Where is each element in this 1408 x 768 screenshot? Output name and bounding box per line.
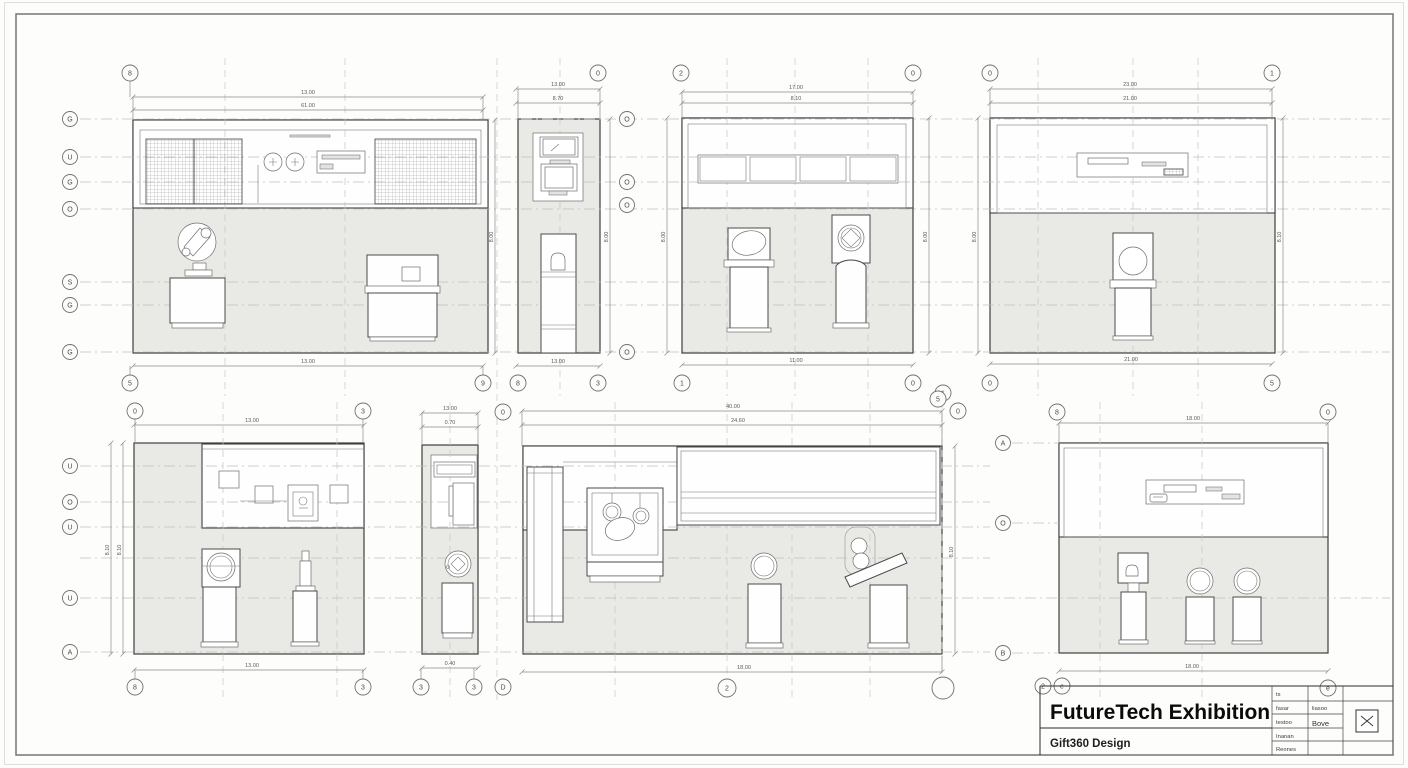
- cad-sheet: 13.00 61.00 13.00 8.00 8 5 9 G U G O S G…: [0, 0, 1408, 768]
- dim-label: 21.00: [1123, 96, 1137, 102]
- svg-text:O: O: [624, 180, 630, 187]
- dim-label: 61.00: [301, 103, 315, 109]
- grid-bubble: 0: [905, 375, 921, 391]
- svg-text:3: 3: [596, 381, 600, 388]
- svg-text:0: 0: [133, 409, 137, 416]
- grid-bubble: 5: [930, 391, 946, 407]
- svg-text:B: B: [1001, 651, 1006, 658]
- table-cell: liasoo: [1312, 706, 1327, 712]
- dim-label: 13.00: [443, 406, 457, 412]
- grid-bubble: G: [63, 345, 78, 360]
- grid-bubble: U: [63, 520, 78, 535]
- svg-text:3: 3: [361, 409, 365, 416]
- grid-bubble: D: [495, 679, 511, 695]
- sheet-subtitle: Gift360 Design: [1050, 738, 1131, 750]
- grid-bubble: 3: [590, 375, 606, 391]
- grid-bubble: 1: [674, 375, 690, 391]
- dim-label: 17.00: [789, 85, 803, 91]
- table-cell: ts: [1276, 692, 1281, 698]
- table-cell: Bove: [1312, 719, 1329, 728]
- dim-label: 8.00: [604, 232, 610, 243]
- dim-label: 24.60: [731, 418, 745, 424]
- grid-bubble: B: [996, 646, 1011, 661]
- svg-text:3: 3: [419, 685, 423, 692]
- svg-text:5: 5: [128, 381, 132, 388]
- svg-text:2: 2: [725, 686, 729, 693]
- grid-bubble: G: [63, 298, 78, 313]
- svg-text:8: 8: [516, 381, 520, 388]
- grid-bubble: 0: [495, 404, 511, 420]
- svg-text:0: 0: [1326, 410, 1330, 417]
- grid-bubble: U: [63, 591, 78, 606]
- dim-label: 13.00: [551, 359, 565, 365]
- grid-bubble: 0: [982, 65, 998, 81]
- grid-bubble: O: [620, 175, 635, 190]
- svg-text:A: A: [1001, 441, 1006, 448]
- dim-label: 18.00: [737, 665, 751, 671]
- dim-label: 13.00: [245, 663, 259, 669]
- svg-text:0: 0: [911, 381, 915, 388]
- dim-label: 40.00: [726, 404, 740, 410]
- sheet-title: FutureTech Exhibition: [1050, 701, 1270, 724]
- svg-text:0: 0: [501, 410, 505, 417]
- grid-bubble: G: [63, 112, 78, 127]
- grid-bubble: 0: [590, 65, 606, 81]
- drawing-sheet-svg: 13.00 61.00 13.00 8.00 8 5 9 G U G O S G…: [0, 0, 1408, 768]
- dim-label: 8.10: [791, 96, 802, 102]
- svg-text:S: S: [68, 280, 73, 287]
- grid-bubble: S: [63, 275, 78, 290]
- svg-text:2: 2: [1041, 684, 1045, 691]
- dim-label: 0.40: [445, 661, 456, 667]
- svg-text:0: 0: [988, 71, 992, 78]
- svg-text:0: 0: [911, 71, 915, 78]
- dim-label: 8.00: [972, 232, 978, 243]
- grid-bubble: G: [63, 175, 78, 190]
- grid-bubble: 1: [1264, 65, 1280, 81]
- dim-label: 8.10: [1277, 232, 1283, 243]
- grid-bubble: 8: [1049, 404, 1065, 420]
- dim-label: 13.00: [301, 90, 315, 96]
- svg-text:5: 5: [936, 397, 940, 404]
- svg-text:G: G: [67, 303, 72, 310]
- dim-label: 8.10: [117, 545, 123, 556]
- svg-text:e: e: [1326, 686, 1330, 693]
- svg-text:G: G: [67, 180, 72, 187]
- svg-text:8: 8: [128, 71, 132, 78]
- dim-label: 8.10: [949, 547, 955, 558]
- grid-bubble: O: [620, 198, 635, 213]
- svg-text:O: O: [67, 207, 73, 214]
- dim-label: 23.00: [1123, 82, 1137, 88]
- svg-text:1: 1: [680, 381, 684, 388]
- grid-bubble: 0: [982, 375, 998, 391]
- dim-label: 18.00: [1185, 664, 1199, 670]
- stamp-icon: [1356, 710, 1378, 732]
- grid-bubble: O: [620, 112, 635, 127]
- dim-label: 18.00: [1186, 416, 1200, 422]
- svg-text:U: U: [67, 464, 72, 471]
- svg-text:D: D: [500, 685, 505, 692]
- svg-text:0: 0: [988, 381, 992, 388]
- dim-label: 13.00: [301, 359, 315, 365]
- dim-label: 11.00: [789, 358, 802, 364]
- svg-text:9: 9: [481, 381, 485, 388]
- table-cell: testoo: [1276, 720, 1292, 726]
- dim-label: 13.00: [245, 418, 259, 424]
- svg-text:O: O: [624, 117, 630, 124]
- svg-text:8: 8: [1055, 410, 1059, 417]
- dim-label: 8.10: [105, 545, 111, 556]
- grid-bubble: U: [63, 150, 78, 165]
- grid-bubble: O: [63, 495, 78, 510]
- svg-text:5: 5: [1270, 381, 1274, 388]
- svg-text:0: 0: [596, 71, 600, 78]
- dim-label: 8.70: [553, 96, 564, 102]
- dim-label: 8.00: [661, 232, 667, 243]
- svg-text:O: O: [1000, 521, 1006, 528]
- svg-text:U: U: [67, 525, 72, 532]
- table-cell: Inanan: [1276, 734, 1294, 740]
- svg-text:0: 0: [956, 409, 960, 416]
- dim-label: 0.70: [445, 420, 456, 426]
- svg-text:2: 2: [679, 71, 683, 78]
- svg-text:U: U: [67, 155, 72, 162]
- dim-label: 21.00: [1124, 357, 1138, 363]
- table-cell: fasar: [1276, 706, 1289, 712]
- grid-bubble: 0: [950, 403, 966, 419]
- grid-bubble: O: [996, 516, 1011, 531]
- svg-text:G: G: [67, 117, 72, 124]
- grid-bubble: U: [63, 459, 78, 474]
- table-cell: Reones: [1276, 747, 1296, 753]
- grid-bubble: 2: [718, 679, 736, 697]
- dim-label: 13.00: [551, 82, 565, 88]
- grid-bubble: A: [996, 436, 1011, 451]
- svg-text:3: 3: [361, 685, 365, 692]
- dim-label: 8.00: [923, 232, 929, 243]
- svg-text:O: O: [624, 203, 630, 210]
- svg-text:e: e: [1060, 684, 1064, 691]
- grid-bubble: e: [1320, 680, 1336, 696]
- grid-bubble: O: [620, 345, 635, 360]
- grid-bubble: 5: [1264, 375, 1280, 391]
- svg-text:G: G: [67, 350, 72, 357]
- svg-text:8: 8: [133, 685, 137, 692]
- svg-text:1: 1: [1270, 71, 1274, 78]
- grid-bubble: A: [63, 645, 78, 660]
- grid-bubble: [932, 677, 954, 699]
- grid-bubble: 2: [673, 65, 689, 81]
- grid-bubble: O: [63, 202, 78, 217]
- svg-text:O: O: [624, 350, 630, 357]
- grid-bubble: 0: [905, 65, 921, 81]
- dim-label: 8.00: [489, 232, 495, 243]
- svg-text:A: A: [68, 650, 73, 657]
- svg-text:3: 3: [472, 685, 476, 692]
- svg-text:U: U: [67, 596, 72, 603]
- svg-text:O: O: [67, 500, 73, 507]
- grid-bubble: 0: [1320, 404, 1336, 420]
- grid-bubble: 8: [510, 375, 526, 391]
